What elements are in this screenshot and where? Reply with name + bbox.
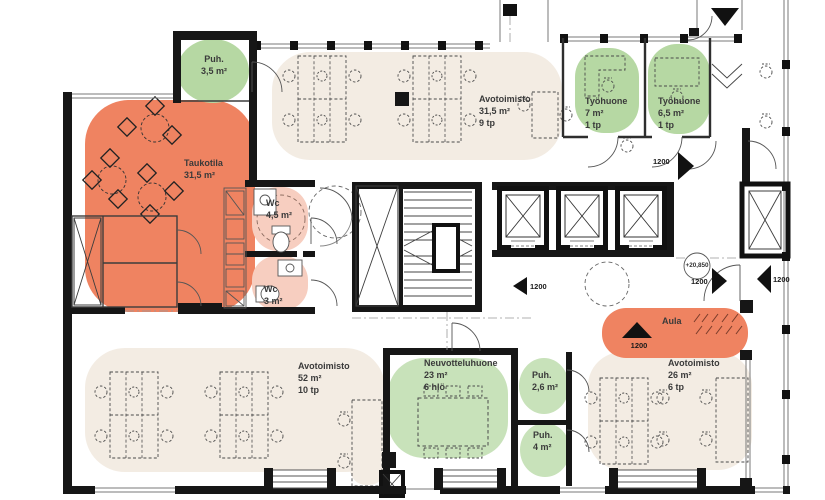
room-label-tyohuone-2: Työhuone6,5 m²1 tp	[658, 96, 700, 132]
room-label-tyohuone-1: Työhuone7 m²1 tp	[585, 96, 627, 132]
room-label-avotoimisto-sw: Avotoimisto52 m²10 tp	[298, 361, 350, 397]
zone-blobs	[85, 39, 752, 485]
room-label-avotoimisto-se: Avotoimisto26 m²6 tp	[668, 358, 720, 394]
dim-workroom-corridor: 1200	[653, 158, 670, 166]
dim-hall-right: 1200	[691, 278, 708, 286]
room-label-avotoimisto-top: Avotoimisto31,5 m²9 tp	[479, 94, 531, 130]
dimension-arrows	[513, 8, 771, 338]
room-label-puh-4: Puh.4 m²	[533, 430, 553, 454]
room-label-neuvotteluhuone: Neuvotteluhuone23 m²6 hlö	[424, 358, 498, 394]
room-label-puh-26: Puh.2,6 m²	[532, 370, 558, 394]
dim-aula-entry: 1200	[625, 342, 653, 350]
dim-right-edge: 1200	[773, 276, 790, 284]
staircase	[404, 192, 472, 296]
dim-elevator-hall: 1200	[530, 283, 547, 291]
room-label-wc-1: Wc4,5 m²	[266, 198, 292, 222]
room-label-wc-2: Wc3 m²	[264, 284, 283, 308]
floor-plan: Puh.3,5 m² Taukotila31,5 m² Avotoimisto3…	[0, 0, 825, 500]
plan-linework	[0, 0, 825, 500]
room-label-taukotila: Taukotila31,5 m²	[184, 158, 223, 182]
room-label-aula: Aula	[662, 316, 682, 328]
elevator-bank	[497, 186, 667, 250]
room-label-puh-top: Puh.3,5 m²	[188, 54, 240, 78]
level-marker-text: +20,850	[682, 263, 712, 269]
